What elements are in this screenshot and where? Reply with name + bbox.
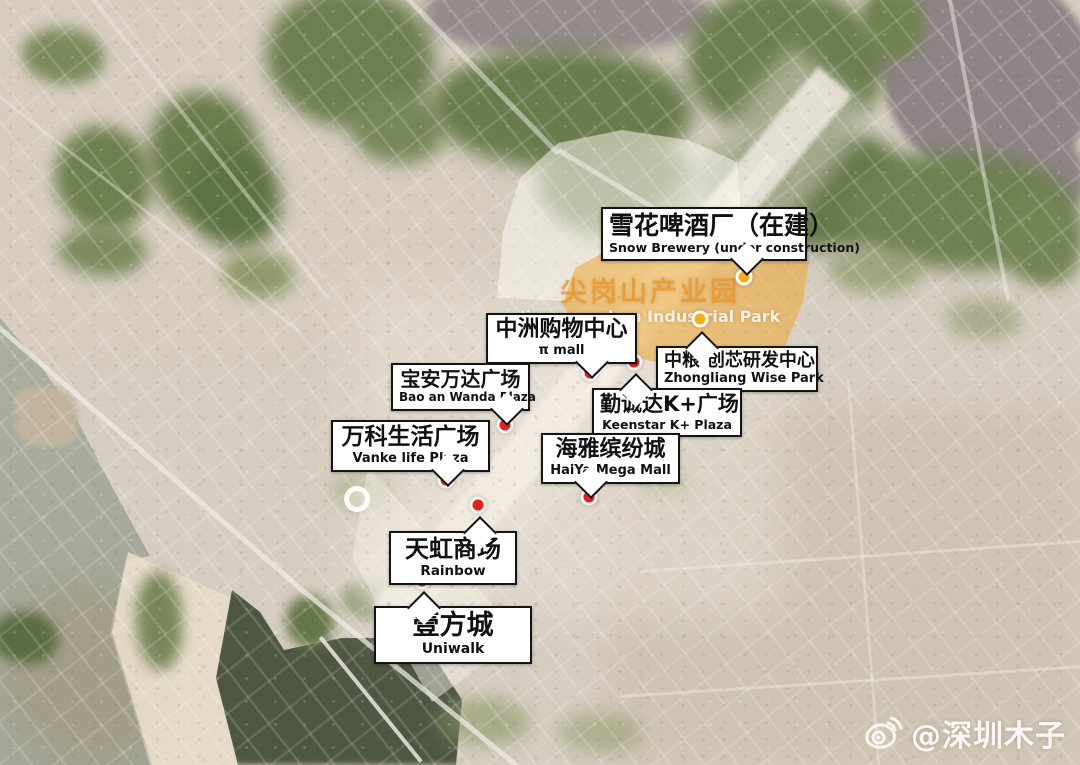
reservoir-lake xyxy=(1016,138,1080,214)
callout-title-cn: 壹方城 xyxy=(382,611,524,641)
satellite-map: 尖岗山产业园 Jiangangshan Industrial Park 雪花啤酒… xyxy=(0,0,1080,765)
forest-patch xyxy=(430,48,692,170)
forest-patch xyxy=(0,612,58,664)
forest-patch xyxy=(686,0,882,144)
road-line xyxy=(0,95,300,332)
callout-pi-mall: 中洲购物中心 π mall xyxy=(486,313,637,364)
callout-zhongliang-wise-park: 中粮·创芯研发中心 Zhongliang Wise Park xyxy=(656,346,818,392)
callout-title-cn: 海雅缤纷城 xyxy=(549,438,672,463)
callout-title-en: Uniwalk xyxy=(382,642,524,657)
coastal-expressway xyxy=(0,325,300,589)
reservoir-lake xyxy=(882,0,1080,182)
location-dot-zhongliang xyxy=(692,311,709,328)
callout-title-en: Zhongliang Wise Park xyxy=(664,372,810,386)
forest-patch xyxy=(286,596,334,648)
road-line xyxy=(847,380,880,765)
forest-patch xyxy=(136,572,182,670)
callout-title-cn: 中洲购物中心 xyxy=(494,318,629,343)
road-line xyxy=(946,0,1010,301)
callout-title-en: Keenstar K+ Plaza xyxy=(600,418,734,432)
callout-title-cn: 雪花啤酒厂（在建） xyxy=(609,212,799,240)
callout-haiya-mega-mall: 海雅缤纷城 HaiYa Mega Mall xyxy=(541,433,680,484)
callout-title-cn: 万科生活广场 xyxy=(339,425,482,451)
forest-patch xyxy=(148,92,260,224)
road-line xyxy=(640,540,1080,573)
forest-patch xyxy=(860,0,924,60)
forest-patch xyxy=(438,698,530,746)
callout-title-cn: 中粮·创芯研发中心 xyxy=(664,351,810,371)
callout-title-en: Vanke life Plaza xyxy=(339,452,482,466)
river-channel-area xyxy=(0,0,1080,765)
callout-title-cn: 宝安万达广场 xyxy=(399,368,522,390)
forest-patch xyxy=(188,148,280,248)
callout-title-en: π mall xyxy=(494,344,629,358)
forest-patch xyxy=(1002,192,1080,286)
location-dot-rainbow xyxy=(470,497,487,514)
callout-title-cn: 天虹商场 xyxy=(397,536,509,563)
weibo-watermark: @深圳木子 xyxy=(863,711,1066,755)
callout-title-en: Snow Brewery (under construction) xyxy=(609,241,799,255)
weibo-icon xyxy=(863,716,903,750)
callout-rainbow: 天虹商场 Rainbow xyxy=(389,531,517,585)
forest-patch xyxy=(266,0,434,128)
forest-patch xyxy=(842,152,1076,270)
construction-zone-overlay xyxy=(0,0,1080,765)
forest-patch xyxy=(946,298,1020,340)
sea-water-area xyxy=(0,0,1080,765)
callout-title-cn: 勤诚达K+广场 xyxy=(600,393,734,417)
stadium-circle xyxy=(344,486,370,512)
urban-tint-area xyxy=(0,0,470,340)
callout-snow-brewery: 雪花啤酒厂（在建） Snow Brewery (under constructi… xyxy=(601,207,807,261)
road-line xyxy=(620,665,1080,698)
industrial-park-overlay xyxy=(0,0,1080,765)
forest-patch xyxy=(22,28,104,84)
forest-patch xyxy=(332,472,394,512)
forest-patch xyxy=(350,92,444,164)
callout-vanke-life-plaza: 万科生活广场 Vanke life Plaza xyxy=(331,420,490,472)
reservoir-lake xyxy=(842,36,916,78)
forest-patch xyxy=(55,126,151,232)
industrial-park-name-cn: 尖岗山产业园 xyxy=(450,270,850,309)
forest-patch xyxy=(558,712,642,754)
reservoir-lake xyxy=(425,0,715,54)
watermark-text: @深圳木子 xyxy=(911,711,1066,755)
pale-development-wedge xyxy=(0,0,1080,765)
callout-title-en: HaiYa Mega Mall xyxy=(549,464,672,478)
road-line xyxy=(401,0,560,156)
coastal-pond xyxy=(16,388,78,446)
port-land-strip xyxy=(0,0,1080,765)
sea-sediment-area xyxy=(0,580,170,765)
forest-patch xyxy=(222,252,294,298)
callout-uniwalk: 壹方城 Uniwalk xyxy=(374,606,532,664)
forest-patch xyxy=(58,226,146,276)
callout-baoan-wanda-plaza: 宝安万达广场 Bao an Wanda Plaza xyxy=(391,363,530,411)
road-line xyxy=(92,0,330,300)
callout-title-en: Rainbow xyxy=(397,564,509,579)
callout-keenstar-k-plaza: 勤诚达K+广场 Keenstar K+ Plaza xyxy=(592,388,742,437)
